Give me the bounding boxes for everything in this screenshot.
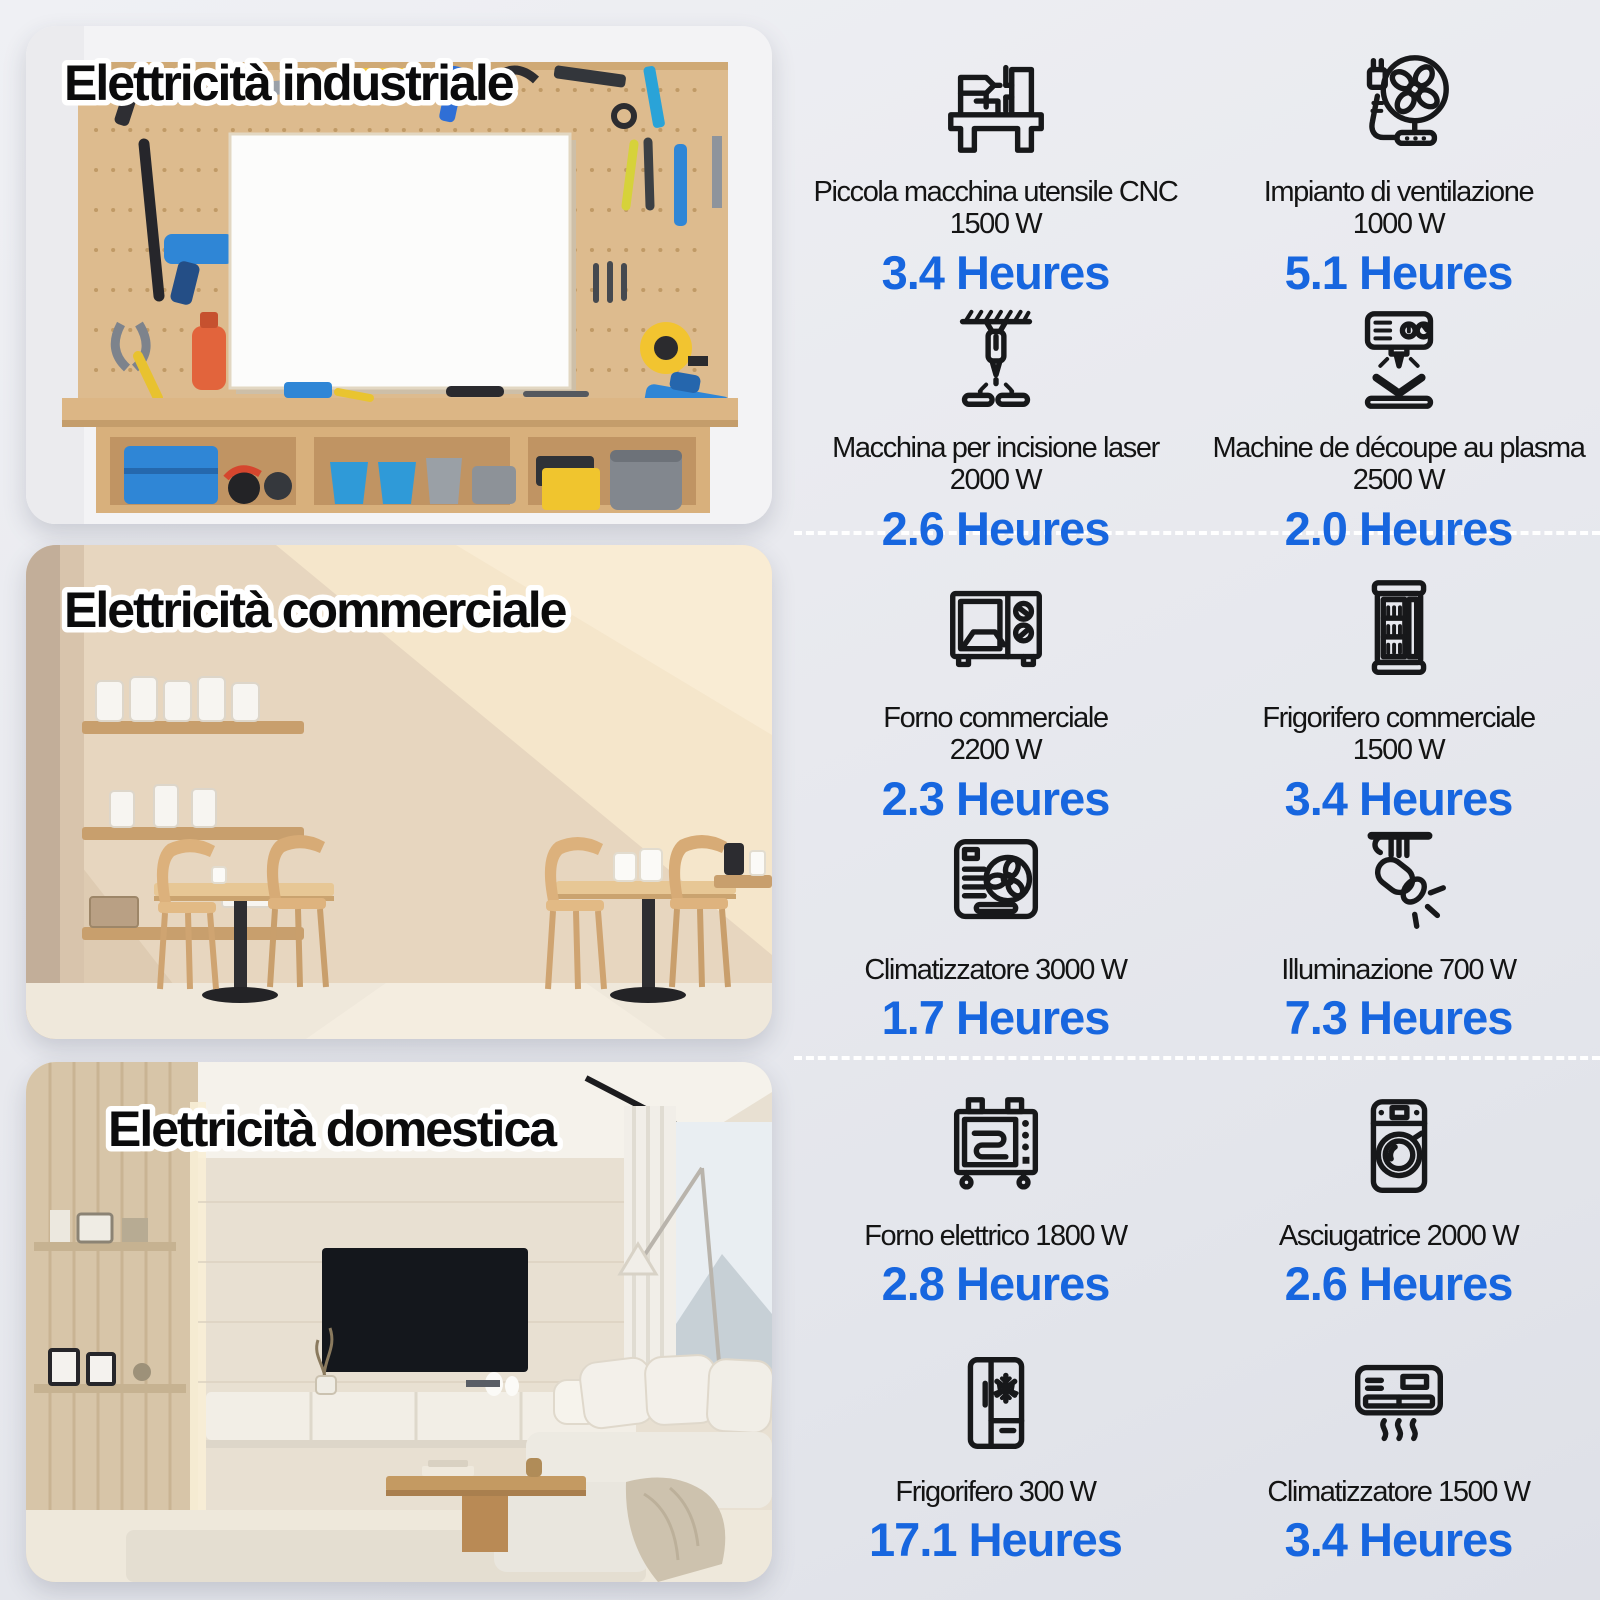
plasma-cutter-icon [1340,298,1458,420]
appliance-item-wall-ac: Climatizzatore 1500 W 3.4 Heures [1197,1342,1600,1567]
industrial-photo [26,26,772,524]
appliance-hours: 2.6 Heures [1285,1256,1513,1311]
section-separator-2 [794,1056,1600,1060]
domestic-photo [26,1062,772,1582]
air-conditioner-icon [937,820,1055,942]
row-industrial-1: Piccola macchina utensile CNC1500 W 3.4 … [794,42,1600,300]
appliance-label: Climatizzatore 1500 W [1267,1476,1529,1508]
appliance-label: Machine de découpe au plasma2500 W [1213,432,1585,497]
appliance-hours: 3.4 Heures [1285,1512,1513,1567]
cnc-machine-icon [937,42,1055,164]
workshop-scene [26,26,772,524]
row-domestic-1: Forno elettrico 1800 W 2.8 Heures Asciug… [794,1086,1600,1311]
appliance-label: Frigorifero commerciale1500 W [1262,702,1534,767]
appliance-item-cnc: Piccola macchina utensile CNC1500 W 3.4 … [794,42,1197,300]
electric-oven-icon [937,1086,1055,1208]
appliance-item-plasma: Machine de découpe au plasma2500 W 2.0 H… [1197,298,1600,556]
spotlight-icon [1340,820,1458,942]
appliance-item-commercial-fridge: Frigorifero commerciale1500 W 3.4 Heures [1197,568,1600,826]
row-commercial-2: Climatizzatore 3000 W 1.7 Heures Illum [794,820,1600,1045]
appliance-item-lighting: Illuminazione 700 W 7.3 Heures [1197,820,1600,1045]
appliance-label: Impianto di ventilazione1000 W [1264,176,1533,241]
appliance-hours: 2.0 Heures [1285,501,1513,556]
appliance-hours: 17.1 Heures [869,1512,1122,1567]
appliance-hours: 2.6 Heures [882,501,1110,556]
laser-engraver-icon [937,298,1055,420]
appliance-item-air-conditioner: Climatizzatore 3000 W 1.7 Heures [794,820,1197,1045]
commercial-fridge-icon [1340,568,1458,690]
row-industrial-2: Macchina per incisione laser2000 W 2.6 H… [794,298,1600,556]
appliance-item-ventilation: Impianto di ventilazione1000 W 5.1 Heure… [1197,42,1600,300]
row-domestic-2: Frigorifero 300 W 17.1 Heures Climatizza… [794,1342,1600,1567]
appliance-label: Climatizzatore 3000 W [864,954,1126,986]
commercial-photo [26,545,772,1039]
appliance-item-refrigerator: Frigorifero 300 W 17.1 Heures [794,1342,1197,1567]
livingroom-scene [26,1062,772,1582]
appliance-hours: 1.7 Heures [882,990,1110,1045]
dryer-icon [1340,1086,1458,1208]
appliance-label: Illuminazione 700 W [1281,954,1516,986]
appliance-item-commercial-oven: Forno commerciale2200 W 2.3 Heures [794,568,1197,826]
appliance-item-dryer: Asciugatrice 2000 W 2.6 Heures [1197,1086,1600,1311]
appliance-hours: 7.3 Heures [1285,990,1513,1045]
appliance-label: Forno elettrico 1800 W [864,1220,1127,1252]
appliance-label: Piccola macchina utensile CNC1500 W [814,176,1178,241]
cafe-scene [26,545,772,1039]
infographic-canvas: Elettricità industriale [0,0,1600,1600]
appliance-hours: 3.4 Heures [1285,771,1513,826]
appliance-hours: 3.4 Heures [882,245,1110,300]
appliance-hours: 5.1 Heures [1285,245,1513,300]
appliance-label: Frigorifero 300 W [895,1476,1095,1508]
appliance-item-electric-oven: Forno elettrico 1800 W 2.8 Heures [794,1086,1197,1311]
appliance-hours: 2.3 Heures [882,771,1110,826]
appliance-item-laser: Macchina per incisione laser2000 W 2.6 H… [794,298,1197,556]
wall-air-conditioner-icon [1340,1342,1458,1464]
row-commercial-1: Forno commerciale2200 W 2.3 Heures Frigo… [794,568,1600,826]
ventilation-fan-icon [1340,42,1458,164]
commercial-oven-icon [937,568,1055,690]
refrigerator-icon [937,1342,1055,1464]
appliance-hours: 2.8 Heures [882,1256,1110,1311]
appliance-label: Forno commerciale2200 W [883,702,1107,767]
appliance-label: Asciugatrice 2000 W [1279,1220,1518,1252]
appliance-label: Macchina per incisione laser2000 W [832,432,1159,497]
